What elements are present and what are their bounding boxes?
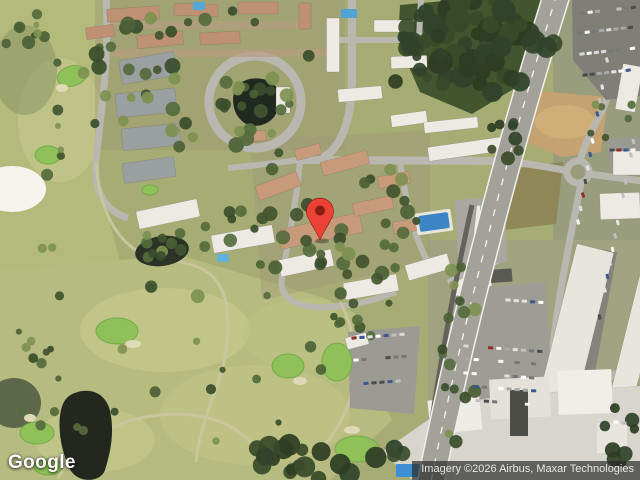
tree: [468, 303, 482, 317]
car: [465, 357, 470, 360]
marker-shadow: [315, 239, 329, 244]
car: [474, 385, 479, 388]
tree: [316, 250, 325, 259]
tree: [78, 67, 90, 79]
tree: [398, 31, 410, 43]
tree: [300, 235, 312, 247]
tree: [511, 72, 530, 91]
tree: [224, 234, 237, 247]
tree: [48, 243, 56, 251]
golf-green: [142, 185, 158, 195]
swimming-pool: [217, 254, 229, 262]
tree: [243, 123, 256, 136]
tree: [140, 68, 152, 80]
tree: [441, 383, 449, 391]
car: [538, 301, 543, 304]
tree: [471, 27, 484, 40]
tree: [356, 255, 370, 269]
tree: [445, 264, 458, 277]
car: [521, 376, 526, 379]
car: [589, 72, 595, 76]
car: [618, 69, 624, 73]
car: [616, 7, 621, 10]
tree: [413, 63, 427, 77]
swimming-pool: [341, 9, 357, 18]
car: [492, 400, 497, 403]
tree: [111, 408, 119, 416]
sand-trap: [344, 426, 360, 434]
car: [599, 29, 604, 33]
car: [353, 358, 358, 361]
car: [531, 362, 536, 366]
tree: [443, 313, 453, 323]
tree: [434, 48, 448, 62]
building: [200, 31, 241, 45]
tree: [15, 23, 24, 32]
sand-trap: [24, 414, 36, 422]
golf-green: [272, 354, 304, 378]
tree: [57, 152, 65, 160]
car: [529, 349, 534, 352]
tree: [388, 74, 403, 89]
tree: [28, 353, 38, 363]
tree: [32, 9, 42, 19]
tree: [266, 72, 280, 86]
tree: [600, 421, 611, 432]
car: [463, 344, 468, 347]
sand-trap: [293, 377, 307, 385]
car: [514, 299, 519, 302]
car: [463, 371, 468, 374]
car: [616, 148, 621, 151]
tree: [630, 424, 639, 433]
sand-trap: [56, 84, 68, 92]
car: [393, 355, 398, 358]
tree: [483, 82, 503, 102]
map-canvas[interactable]: Google Imagery ©2026 Airbus, Maxar Techn…: [0, 0, 640, 480]
tree: [456, 262, 466, 272]
tree: [605, 442, 621, 458]
tree: [508, 121, 518, 131]
attribution-bar: Imagery ©2026 Airbus, Maxar Technologies: [412, 461, 640, 480]
tree: [487, 145, 496, 154]
tree: [412, 217, 420, 225]
tree: [50, 407, 59, 416]
tree: [2, 39, 11, 48]
tree: [276, 104, 287, 115]
tree: [254, 104, 268, 118]
tree: [235, 205, 247, 217]
tree: [257, 212, 269, 224]
tree: [58, 146, 65, 153]
tree: [266, 86, 276, 96]
tree: [474, 64, 490, 80]
tree: [251, 18, 260, 27]
car: [476, 399, 481, 402]
google-logo[interactable]: Google: [8, 452, 76, 474]
car: [513, 348, 518, 351]
tree: [27, 337, 36, 346]
tree: [206, 384, 216, 394]
tree: [35, 420, 45, 430]
tree: [522, 30, 546, 54]
tree: [274, 148, 283, 157]
tree: [16, 329, 22, 335]
tree: [449, 435, 462, 448]
car: [615, 48, 621, 52]
tree: [120, 17, 135, 32]
car: [359, 336, 364, 339]
tree: [437, 344, 447, 354]
tree: [625, 115, 633, 123]
sand-trap: [125, 340, 141, 348]
car: [630, 148, 635, 151]
tree: [431, 29, 446, 44]
tree: [399, 196, 409, 206]
tree: [52, 105, 63, 116]
car: [361, 358, 366, 362]
car: [399, 333, 404, 336]
building: [613, 151, 640, 175]
tree: [148, 249, 157, 258]
tree: [175, 228, 186, 239]
car: [498, 387, 503, 390]
tree: [191, 289, 205, 303]
car: [613, 420, 618, 423]
tree: [330, 313, 338, 321]
car: [522, 300, 527, 303]
car: [529, 376, 534, 380]
tree: [501, 151, 515, 165]
car: [498, 360, 503, 363]
tree: [175, 244, 187, 256]
tree: [123, 64, 135, 76]
tree: [33, 22, 39, 28]
car: [383, 334, 388, 338]
tree: [193, 338, 200, 345]
tree: [18, 408, 25, 415]
car: [525, 403, 530, 406]
tree: [266, 163, 278, 175]
tree: [513, 145, 523, 155]
car: [505, 298, 510, 301]
tree: [330, 454, 351, 475]
tree: [156, 251, 166, 261]
car: [597, 72, 602, 76]
hospital-roof-section: [557, 369, 613, 415]
car: [387, 380, 392, 384]
car: [367, 335, 372, 339]
tree: [627, 101, 635, 109]
building: [299, 3, 311, 29]
tree: [184, 18, 192, 26]
tree: [380, 239, 391, 250]
tree: [280, 88, 294, 102]
car: [472, 372, 477, 375]
tree: [146, 283, 156, 293]
tree: [349, 299, 359, 309]
tree: [384, 164, 396, 176]
car: [496, 347, 501, 350]
car: [609, 148, 614, 151]
tree: [359, 177, 370, 188]
tree: [387, 448, 401, 462]
tree: [55, 291, 64, 300]
car: [401, 355, 406, 358]
tree: [587, 130, 594, 137]
tree: [89, 46, 105, 62]
tree: [199, 241, 210, 252]
tree: [153, 65, 162, 74]
car: [513, 375, 518, 378]
car: [375, 334, 381, 338]
tree: [145, 12, 157, 24]
car: [628, 26, 634, 30]
tree: [233, 81, 245, 93]
tree: [449, 281, 458, 290]
tree: [166, 102, 181, 117]
tree: [303, 50, 315, 62]
tree: [458, 306, 470, 318]
car: [474, 358, 479, 361]
tree: [142, 92, 154, 104]
car: [531, 389, 536, 392]
tree: [412, 52, 421, 61]
tree: [215, 98, 227, 110]
tree: [165, 58, 181, 74]
car: [597, 418, 603, 422]
tree: [166, 238, 177, 249]
tree: [508, 132, 522, 146]
tree: [169, 73, 181, 85]
tree: [201, 222, 211, 232]
tree: [73, 423, 81, 431]
tree: [459, 52, 475, 68]
hospital-dark-tower: [510, 390, 528, 436]
tree: [41, 169, 53, 181]
tree: [90, 119, 99, 128]
tree: [249, 90, 258, 99]
tree: [418, 34, 433, 49]
tree: [43, 349, 50, 356]
tree: [198, 13, 211, 26]
tree: [371, 273, 383, 285]
tree: [342, 269, 352, 279]
tree: [276, 230, 290, 244]
car: [506, 387, 511, 390]
tree: [228, 6, 238, 16]
car: [523, 389, 528, 392]
tree: [127, 93, 136, 102]
tree: [250, 225, 258, 233]
tree: [38, 244, 47, 253]
car: [371, 381, 376, 384]
tree: [312, 442, 331, 461]
tree: [256, 447, 274, 465]
tree: [234, 126, 245, 137]
tree: [179, 117, 192, 130]
tree: [220, 76, 233, 89]
tree: [118, 116, 129, 127]
tree: [381, 218, 391, 228]
car: [484, 400, 489, 403]
tree: [212, 437, 219, 444]
tree: [106, 42, 116, 52]
tree: [290, 208, 303, 221]
tree: [316, 364, 327, 375]
tree: [491, 36, 512, 57]
swimming-pool: [193, 2, 205, 10]
tree: [400, 204, 415, 219]
tree: [173, 141, 185, 153]
building: [600, 192, 640, 219]
dirt-field-center: [535, 105, 595, 139]
tree: [237, 101, 246, 110]
tree: [33, 29, 42, 38]
tree: [296, 444, 308, 456]
tree: [389, 243, 399, 253]
tree: [444, 359, 456, 371]
tree: [263, 292, 270, 299]
tree: [55, 376, 61, 382]
tree: [158, 234, 167, 243]
tree: [592, 101, 600, 109]
car: [621, 421, 626, 424]
tree: [224, 206, 236, 218]
tree: [91, 59, 106, 74]
building: [327, 18, 340, 72]
car: [351, 336, 356, 340]
tree: [118, 344, 128, 354]
tree: [418, 4, 435, 21]
car: [611, 70, 616, 73]
tree: [267, 129, 276, 138]
car: [530, 300, 535, 303]
tree: [252, 375, 261, 384]
tree: [257, 261, 265, 269]
tree: [386, 184, 400, 198]
tree: [446, 7, 471, 32]
car: [537, 350, 542, 353]
tree: [268, 260, 282, 274]
car: [515, 388, 520, 391]
tree: [294, 456, 315, 477]
tree: [150, 386, 161, 397]
tree: [55, 123, 61, 129]
tree: [335, 242, 345, 252]
tree: [53, 59, 61, 67]
tree: [365, 447, 386, 468]
tree: [602, 134, 609, 141]
tree: [397, 227, 409, 239]
car: [385, 356, 390, 359]
tree: [513, 18, 527, 32]
car: [391, 333, 396, 336]
car: [482, 386, 487, 389]
car: [379, 380, 384, 383]
tree: [142, 231, 151, 240]
marker-pin-dot: [315, 206, 325, 216]
tree: [495, 120, 505, 130]
tree: [165, 26, 177, 38]
tree: [610, 403, 620, 413]
tree: [22, 36, 35, 49]
tree: [220, 367, 226, 373]
tree: [455, 296, 465, 306]
tree: [305, 341, 316, 352]
car: [488, 346, 493, 349]
car: [504, 374, 509, 377]
tree: [334, 287, 346, 299]
tree: [386, 300, 393, 307]
attribution-text: Imagery ©2026 Airbus, Maxar Technologies: [421, 463, 634, 475]
tree: [390, 263, 400, 273]
car: [623, 148, 628, 151]
tree: [100, 90, 111, 101]
tree: [188, 132, 198, 142]
tree: [450, 384, 459, 393]
car: [363, 382, 368, 386]
tree: [352, 315, 363, 326]
car: [515, 361, 520, 364]
car: [395, 379, 401, 383]
tree: [436, 77, 450, 91]
tree: [275, 419, 281, 425]
tree: [155, 31, 164, 40]
tree: [165, 124, 178, 137]
tree: [395, 173, 408, 186]
car: [521, 348, 526, 351]
building: [238, 2, 278, 14]
car: [504, 347, 509, 350]
